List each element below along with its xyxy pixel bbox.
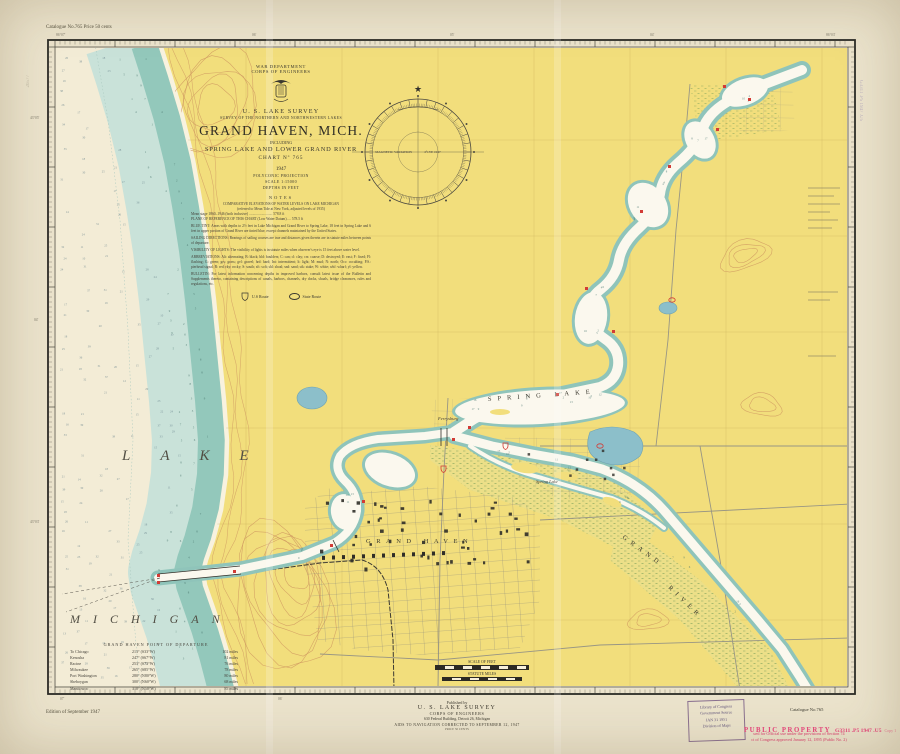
svg-text:26: 26 xyxy=(65,650,69,654)
svg-text:38: 38 xyxy=(79,59,83,63)
svg-text:26: 26 xyxy=(118,213,122,217)
note-line: BULLETIN: For latest information concern… xyxy=(191,272,371,287)
svg-text:24: 24 xyxy=(154,275,158,279)
svg-text:25: 25 xyxy=(102,169,106,173)
label-lake: LAKE xyxy=(121,448,279,464)
us-route-label: U.S Route xyxy=(252,294,269,299)
svg-text:12: 12 xyxy=(123,379,127,383)
svg-text:13: 13 xyxy=(497,449,501,453)
chart-sheet: 2038182723193826173417303528183025213117… xyxy=(0,0,900,754)
stamp-line: Division of Maps xyxy=(689,722,744,730)
svg-text:22: 22 xyxy=(160,410,164,414)
svg-text:21: 21 xyxy=(60,367,64,371)
svg-text:24: 24 xyxy=(170,409,174,413)
svg-text:13: 13 xyxy=(79,607,83,611)
svg-text:16: 16 xyxy=(584,329,588,333)
correction-note: AIDS TO NAVIGATION CORRECTED TO SEPTEMBE… xyxy=(366,723,548,727)
svg-text:11: 11 xyxy=(168,486,171,490)
svg-text:33: 33 xyxy=(160,435,164,439)
svg-text:11: 11 xyxy=(137,397,140,401)
svg-text:25: 25 xyxy=(139,550,143,554)
svg-text:21: 21 xyxy=(81,412,85,416)
note-line: VISIBILITY OF LIGHTS: The visibility of … xyxy=(191,248,371,253)
svg-text:14: 14 xyxy=(346,493,350,497)
svg-text:21: 21 xyxy=(120,290,124,294)
svg-text:11: 11 xyxy=(347,500,350,504)
svg-text:32: 32 xyxy=(83,378,87,382)
provision-stamp: ued for Official use under the provision… xyxy=(706,731,892,744)
svg-text:18: 18 xyxy=(82,157,86,161)
svg-text:15: 15 xyxy=(136,412,140,416)
svg-text:29: 29 xyxy=(172,429,176,433)
svg-text:39: 39 xyxy=(88,345,92,349)
chart-title: GRAND HAVEN, MICH. xyxy=(185,123,377,139)
svg-text:18: 18 xyxy=(62,412,66,416)
table-row: Manitowoc310° (N50°W)85 miles xyxy=(70,686,242,692)
svg-text:27: 27 xyxy=(108,529,112,533)
agency-line: U. S. LAKE SURVEY xyxy=(185,108,377,115)
note-line: PLANE OF REFERENCE OF THIS CHART (Low Wa… xyxy=(191,217,371,222)
note-line: BLUE TINT: Areas with depths to 2½ feet … xyxy=(191,224,371,234)
svg-text:21: 21 xyxy=(64,313,68,317)
survey-line: SURVEY OF THE NORTHERN AND NORTHWESTERN … xyxy=(185,116,377,120)
svg-text:30: 30 xyxy=(86,309,90,313)
svg-text:37: 37 xyxy=(61,661,65,665)
svg-text:17: 17 xyxy=(77,110,81,114)
svg-text:32: 32 xyxy=(103,588,107,592)
svg-text:17: 17 xyxy=(472,407,476,411)
svg-text:16: 16 xyxy=(66,423,70,427)
svg-text:16: 16 xyxy=(473,398,477,402)
svg-text:30: 30 xyxy=(82,170,86,174)
svg-text:16: 16 xyxy=(83,597,87,601)
svg-text:21: 21 xyxy=(114,166,118,170)
svg-text:26: 26 xyxy=(100,489,104,493)
svg-text:30: 30 xyxy=(82,135,86,139)
svg-text:37: 37 xyxy=(158,423,162,427)
svg-text:28: 28 xyxy=(146,267,150,271)
svg-text:19: 19 xyxy=(105,301,109,305)
svg-text:33: 33 xyxy=(64,433,68,437)
svg-text:17: 17 xyxy=(113,189,117,193)
svg-text:31: 31 xyxy=(66,567,70,571)
chart-year: 1947 xyxy=(185,166,377,172)
svg-text:13: 13 xyxy=(566,467,570,471)
scale-feet-label: SCALE OF FEET xyxy=(426,660,538,664)
route-legend: U.S Route State Route xyxy=(185,292,377,301)
border-label: 86°07' xyxy=(56,33,65,37)
svg-text:24: 24 xyxy=(82,232,86,236)
svg-text:33: 33 xyxy=(117,539,121,543)
svg-text:20: 20 xyxy=(114,365,118,369)
svg-text:17: 17 xyxy=(122,180,126,184)
svg-text:39: 39 xyxy=(112,434,116,438)
state-route-label: State Route xyxy=(303,294,322,299)
svg-text:32: 32 xyxy=(61,245,64,249)
svg-text:24: 24 xyxy=(60,267,64,271)
stamp-line: ct of Congress approved January 12, 1895… xyxy=(706,737,892,743)
svg-text:11: 11 xyxy=(81,245,84,249)
svg-text:18: 18 xyxy=(64,334,68,338)
svg-text:12: 12 xyxy=(599,393,603,397)
paper-crease xyxy=(554,0,561,754)
svg-text:12: 12 xyxy=(77,544,81,548)
catalogue-note-bottom: Catalogue No.765 xyxy=(790,707,823,712)
svg-text:31: 31 xyxy=(81,454,85,458)
svg-text:13: 13 xyxy=(570,400,574,404)
svg-text:16: 16 xyxy=(300,547,304,551)
departure-table-title: GRAND HAVEN POINT OF DEPARTURE xyxy=(70,642,242,647)
svg-text:26: 26 xyxy=(65,519,69,523)
magnetic-variation-label: MAGNETIC VARIATION xyxy=(375,150,412,154)
war-crest-icon xyxy=(268,76,294,106)
svg-text:27: 27 xyxy=(117,477,121,481)
svg-text:25: 25 xyxy=(104,244,108,248)
scale-line: SCALE 1:15000 xyxy=(185,179,377,184)
scale-feet-bar xyxy=(435,665,529,670)
svg-text:16: 16 xyxy=(62,529,66,533)
scale-bars: SCALE OF FEET STATUTE MILES xyxy=(426,660,538,683)
svg-text:23: 23 xyxy=(108,69,112,73)
title-block: WAR DEPARTMENT CORPS OF ENGINEERS U. S. … xyxy=(185,64,377,301)
border-label: 07' xyxy=(60,697,64,701)
svg-text:23: 23 xyxy=(77,555,81,559)
svg-text:34: 34 xyxy=(62,123,66,127)
svg-text:21: 21 xyxy=(109,572,113,576)
svg-text:17: 17 xyxy=(86,127,90,131)
svg-text:25: 25 xyxy=(117,203,121,207)
price-note: PRICE 50 CENTS xyxy=(366,727,548,731)
svg-text:27: 27 xyxy=(149,355,153,359)
publisher-address: 630 Federal Building, Detroit 26, Michig… xyxy=(366,717,548,721)
corps-line: CORPS OF ENGINEERS xyxy=(185,69,377,74)
svg-text:31: 31 xyxy=(104,288,108,292)
svg-text:11: 11 xyxy=(131,434,134,438)
depths-line: DEPTHS IN FEET xyxy=(185,185,377,190)
svg-text:38: 38 xyxy=(79,584,83,588)
svg-text:18: 18 xyxy=(79,367,83,371)
svg-text:36: 36 xyxy=(120,587,124,591)
border-label: 43°03' xyxy=(30,520,39,524)
svg-text:23: 23 xyxy=(157,399,161,403)
svg-text:37: 37 xyxy=(105,375,109,379)
map-content: 2038182723193826173417303528183025213117… xyxy=(52,30,852,692)
border-label: 43°05' xyxy=(30,116,39,120)
border-label: 04' xyxy=(34,318,38,322)
svg-text:14: 14 xyxy=(625,495,629,499)
svg-text:30: 30 xyxy=(80,486,84,490)
svg-text:20: 20 xyxy=(99,324,103,328)
border-label: 06' xyxy=(252,33,256,37)
catalogue-note-top: Catalogue No.765 Price 50 cents xyxy=(46,25,112,30)
chart-subtitle: SPRING LAKE AND LOWER GRAND RIVER xyxy=(185,146,377,153)
svg-text:25: 25 xyxy=(65,555,69,559)
including-line: INCLUDING xyxy=(185,140,377,145)
svg-text:17: 17 xyxy=(126,497,130,501)
label-ferrysburg: Ferrysburg xyxy=(437,416,459,421)
chart-number: CHART Nº 765 xyxy=(185,155,377,161)
notes-text: COMPARATIVE ELEVATIONS OF WATER LEVELS O… xyxy=(191,202,371,287)
border-label: 04' xyxy=(650,33,654,37)
svg-text:28: 28 xyxy=(156,347,160,351)
svg-text:19: 19 xyxy=(89,561,93,565)
svg-text:32: 32 xyxy=(96,554,100,558)
svg-text:24: 24 xyxy=(64,256,68,260)
svg-text:39: 39 xyxy=(80,423,84,427)
svg-text:17: 17 xyxy=(113,606,117,610)
svg-text:36: 36 xyxy=(79,355,83,359)
svg-text:15: 15 xyxy=(61,499,65,503)
magnetic-variation-value: 4°15'E 1947 xyxy=(424,150,441,154)
svg-text:28: 28 xyxy=(118,148,122,152)
svg-text:13: 13 xyxy=(63,632,67,636)
svg-text:15: 15 xyxy=(123,223,127,227)
departure-table: GRAND HAVEN POINT OF DEPARTURE To Chicag… xyxy=(70,642,242,692)
svg-text:37: 37 xyxy=(87,289,91,293)
map-svg: 2038182723193826173417303528183025213117… xyxy=(0,0,900,754)
svg-text:20: 20 xyxy=(65,56,69,60)
svg-text:18: 18 xyxy=(102,56,106,60)
svg-text:15: 15 xyxy=(136,364,140,368)
svg-text:31: 31 xyxy=(96,222,100,226)
svg-text:14: 14 xyxy=(66,210,70,214)
svg-text:11: 11 xyxy=(122,270,125,274)
svg-text:13: 13 xyxy=(351,492,355,496)
svg-text:25: 25 xyxy=(137,542,141,546)
svg-text:36: 36 xyxy=(151,597,155,601)
svg-text:17: 17 xyxy=(64,302,68,306)
svg-text:27: 27 xyxy=(62,69,65,73)
svg-text:35: 35 xyxy=(64,147,68,151)
svg-text:21: 21 xyxy=(104,391,108,395)
svg-text:20: 20 xyxy=(109,599,113,603)
svg-text:38: 38 xyxy=(60,89,64,93)
svg-text:18: 18 xyxy=(64,510,67,514)
svg-text:31: 31 xyxy=(98,364,102,368)
svg-text:11: 11 xyxy=(636,205,639,209)
svg-text:29: 29 xyxy=(144,531,148,535)
svg-text:21: 21 xyxy=(62,475,66,479)
svg-text:29: 29 xyxy=(145,387,149,391)
svg-text:24: 24 xyxy=(79,501,83,505)
svg-text:37: 37 xyxy=(77,630,81,634)
svg-text:25: 25 xyxy=(62,347,66,351)
left-margin-annotation: 26577 xyxy=(26,75,31,88)
border-label: 86°03' xyxy=(826,33,835,37)
north-star-icon: ★ xyxy=(414,84,422,94)
svg-text:36: 36 xyxy=(136,201,140,205)
note-line: ABBREVIATIONS: Alt: alternating; B: blac… xyxy=(191,255,371,270)
scale-miles-bar xyxy=(442,677,522,682)
svg-text:25: 25 xyxy=(142,180,146,184)
border-label: 05' xyxy=(450,33,454,37)
svg-text:31: 31 xyxy=(84,265,88,269)
svg-text:10: 10 xyxy=(160,314,164,318)
svg-text:32: 32 xyxy=(100,474,104,478)
svg-text:16: 16 xyxy=(506,452,510,456)
svg-text:18: 18 xyxy=(105,467,109,471)
svg-text:30: 30 xyxy=(170,424,174,428)
svg-text:17: 17 xyxy=(705,137,709,141)
svg-text:11: 11 xyxy=(85,520,88,524)
border-label: 06' xyxy=(278,697,282,701)
label-michigan: MICHIGAN xyxy=(69,612,233,626)
projection-line: POLYCONIC PROJECTION xyxy=(185,173,377,178)
right-margin-annotation: G3311 .P5 1947 .U5 xyxy=(858,80,863,121)
scale-miles-label: STATUTE MILES xyxy=(426,672,538,676)
svg-text:31: 31 xyxy=(60,178,64,182)
svg-text:10: 10 xyxy=(82,257,86,261)
label-grand-haven: GRAND HAVEN xyxy=(366,538,473,545)
svg-text:19: 19 xyxy=(63,79,67,83)
svg-text:14: 14 xyxy=(78,477,82,481)
svg-text:35: 35 xyxy=(170,510,174,514)
svg-text:29: 29 xyxy=(146,297,150,301)
us-route-shield-icon xyxy=(241,292,249,301)
notes-heading: NOTES xyxy=(185,195,377,200)
publisher-block: Published by U. S. LAKE SURVEY CORPS OF … xyxy=(366,700,548,731)
svg-text:26: 26 xyxy=(61,103,65,107)
svg-text:27: 27 xyxy=(158,322,162,326)
svg-text:35: 35 xyxy=(138,323,142,327)
svg-text:21: 21 xyxy=(105,254,109,258)
edition-note: Edition of September 1947 xyxy=(46,710,100,715)
note-line: SAILING DIRECTIONS: Bearings of sailing … xyxy=(191,236,371,246)
state-route-oval-icon xyxy=(289,293,300,300)
svg-text:18: 18 xyxy=(144,522,148,526)
svg-text:39: 39 xyxy=(62,488,65,492)
publisher-corps: CORPS OF ENGINEERS xyxy=(366,711,548,716)
svg-text:10: 10 xyxy=(742,97,746,101)
svg-text:31: 31 xyxy=(121,556,125,560)
